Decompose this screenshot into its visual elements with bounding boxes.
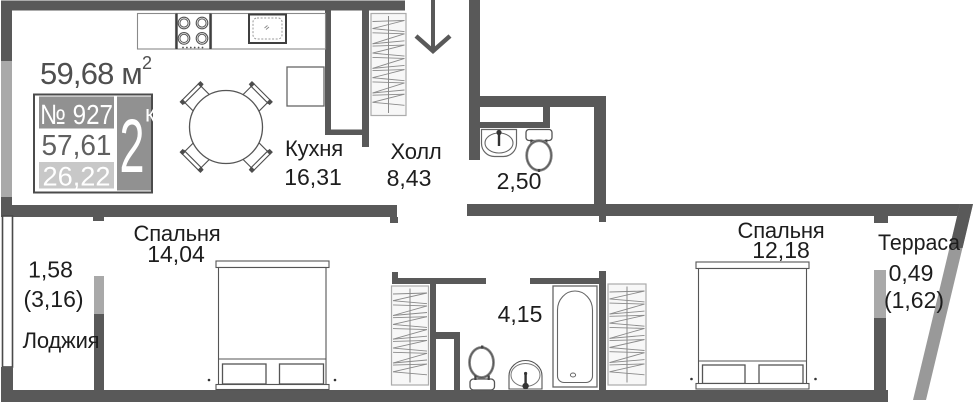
- svg-text:2,50: 2,50: [497, 168, 542, 194]
- svg-text:(3,16): (3,16): [23, 286, 83, 312]
- svg-text:(1,62): (1,62): [884, 287, 944, 313]
- svg-text:Терраса: Терраса: [878, 230, 961, 255]
- svg-text:26,22: 26,22: [43, 162, 111, 192]
- svg-text:Холл: Холл: [390, 139, 441, 164]
- svg-text:8,43: 8,43: [387, 165, 432, 191]
- svg-text:1,58: 1,58: [28, 257, 73, 283]
- svg-text:14,04: 14,04: [147, 241, 205, 267]
- svg-text:12,18: 12,18: [752, 237, 810, 263]
- svg-text:Кухня: Кухня: [285, 136, 343, 161]
- svg-text:2: 2: [142, 53, 152, 73]
- svg-text:59,68 м: 59,68 м: [40, 56, 142, 91]
- svg-text:4,15: 4,15: [498, 301, 543, 327]
- svg-text:0,49: 0,49: [889, 260, 934, 286]
- svg-text:57,61: 57,61: [42, 130, 112, 162]
- svg-text:Лоджия: Лоджия: [23, 328, 100, 353]
- svg-text:к: к: [145, 101, 156, 127]
- svg-text:№ 927: № 927: [40, 99, 113, 130]
- svg-text:2: 2: [120, 104, 145, 189]
- svg-text:16,31: 16,31: [284, 164, 342, 190]
